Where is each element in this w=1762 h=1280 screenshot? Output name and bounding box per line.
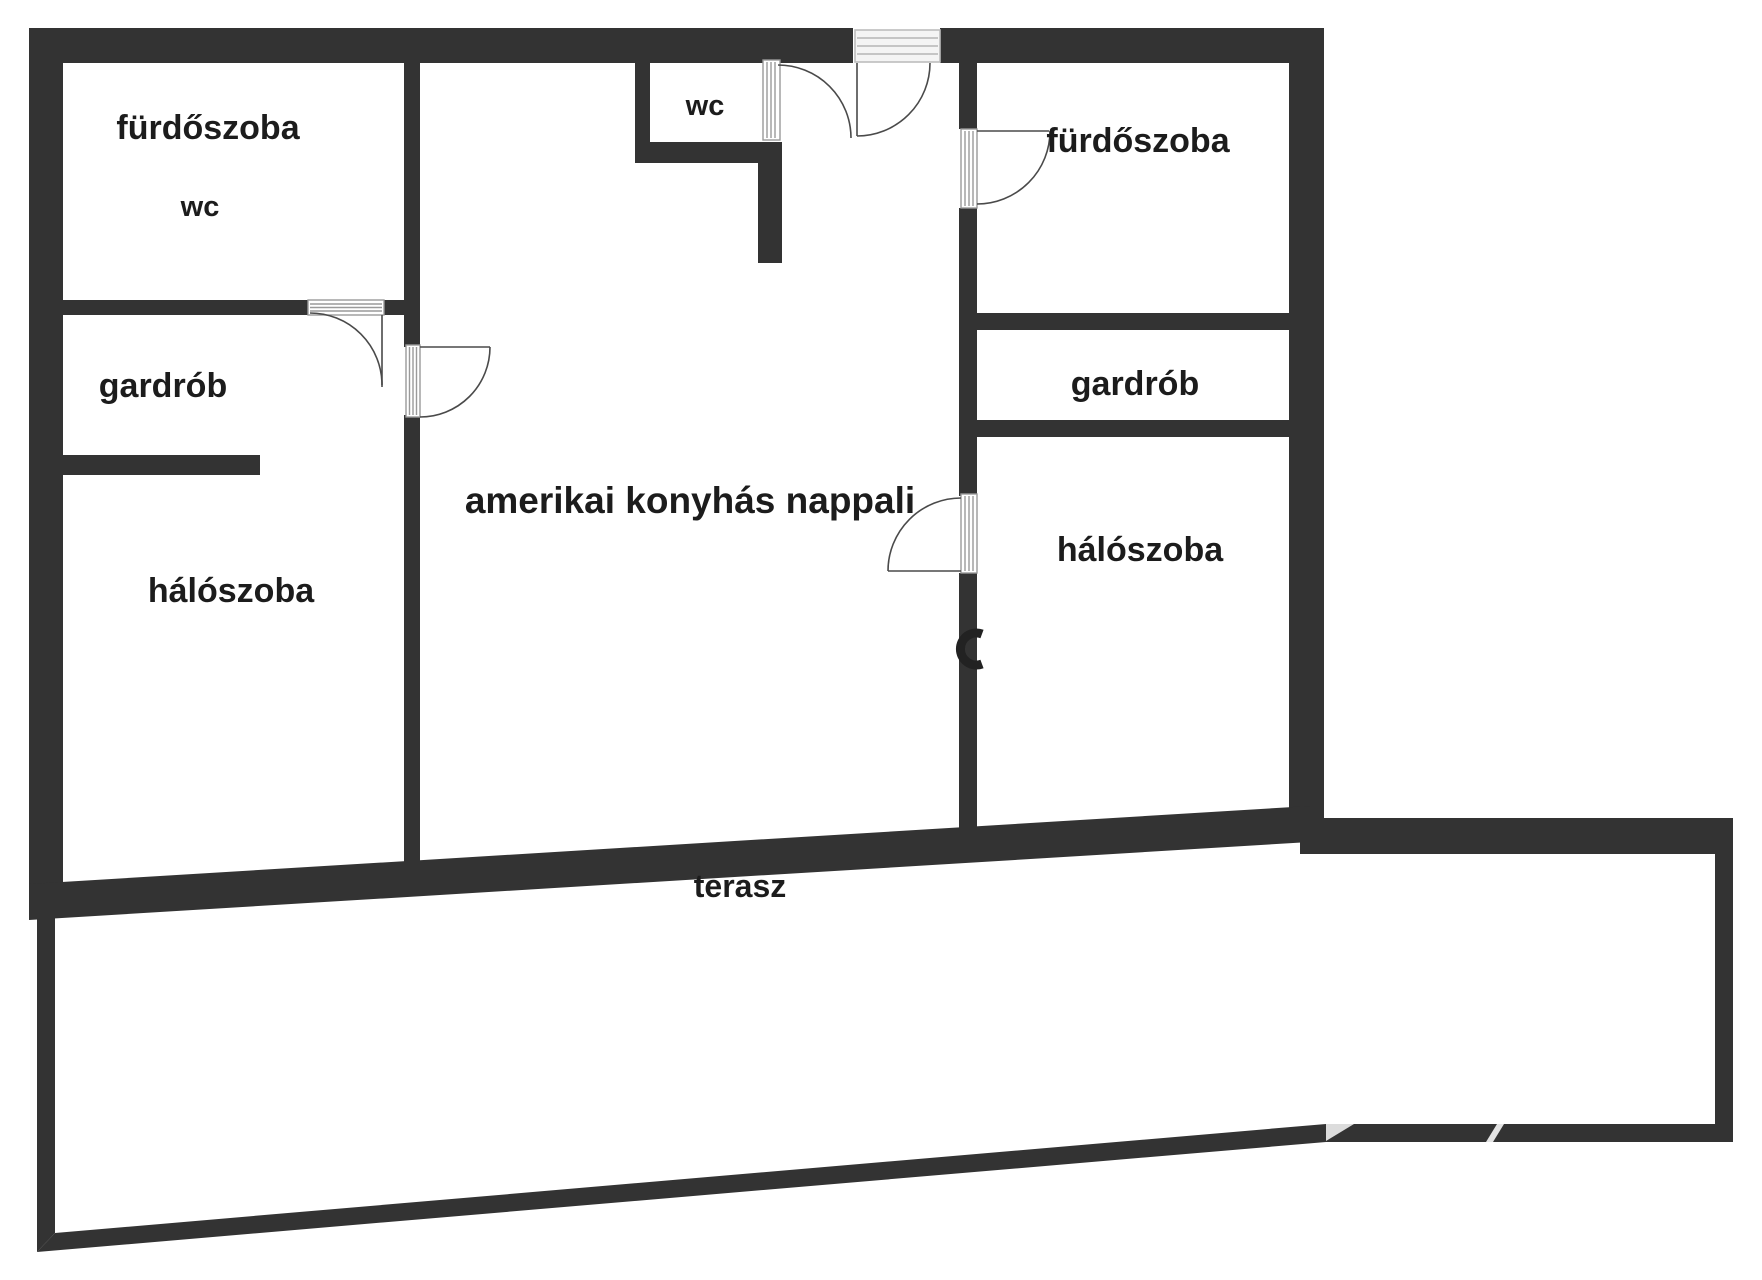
door-living [406,345,490,417]
wall-outer-top-right-segment [940,28,1324,63]
wall-bathroom-left-bottom-a [63,300,308,315]
room-label-bedroom-left: hálószoba [148,572,315,610]
room-label-wardrobe-right: gardrób [1071,365,1199,403]
wall-terrace-bottom-sloped [37,1124,1326,1252]
wall-outer-top-left-segment [29,28,853,63]
wall-outer-bottom-sloped [29,806,1310,920]
wall-divider-right-seg2 [959,208,977,496]
room-label-wc-left: wc [180,191,220,223]
wall-divider-left-middle [404,313,420,347]
room-label-bathroom-right: fürdőszoba [1046,122,1230,160]
wall-bathroom-right-bottom [977,313,1289,330]
wall-wardrobe-right-bottom [977,420,1289,437]
door-entry [855,30,940,136]
door-bathroom-left [308,300,384,387]
wall-terrace-bottom-horizontal [1326,1124,1733,1142]
wall-terrace-left [37,918,55,1252]
floorplan-canvas: fürdőszoba wc wc fürdőszoba gardrób gard… [0,0,1762,1280]
room-labels: fürdőszoba wc wc fürdőszoba gardrób gard… [99,90,1231,904]
wall-divider-right-seg3 [959,573,977,833]
wall-outer-right [1289,28,1324,840]
wall-divider-right-seg1 [959,63,977,129]
walls [29,28,1733,1252]
wall-divider-left-upper [404,63,420,303]
wall-wc-stub [758,163,782,263]
room-label-wardrobe-left: gardrób [99,367,227,405]
room-label-wc-small: wc [685,90,725,122]
floorplan-drawing: fürdőszoba wc wc fürdőszoba gardrób gard… [0,0,1762,1280]
wall-terrace-right [1715,818,1733,1142]
wall-wc-bottom [635,142,782,163]
wall-divider-left-lower [404,415,420,870]
door-wc [763,60,851,140]
room-label-bedroom-right: hálószoba [1057,531,1224,569]
watermark-artifacts [960,633,1504,1142]
room-label-living: amerikai konyhás nappali [465,480,915,521]
door-bathroom-right [961,129,1050,208]
wall-outer-left [29,28,63,886]
wall-terrace-top [1300,818,1733,854]
wall-bathroom-left-bottom-b [384,300,420,315]
room-label-terrace: terasz [694,868,787,904]
room-label-bathroom-left: fürdőszoba [116,109,300,147]
wall-wardrobe-left-bottom [63,455,260,475]
